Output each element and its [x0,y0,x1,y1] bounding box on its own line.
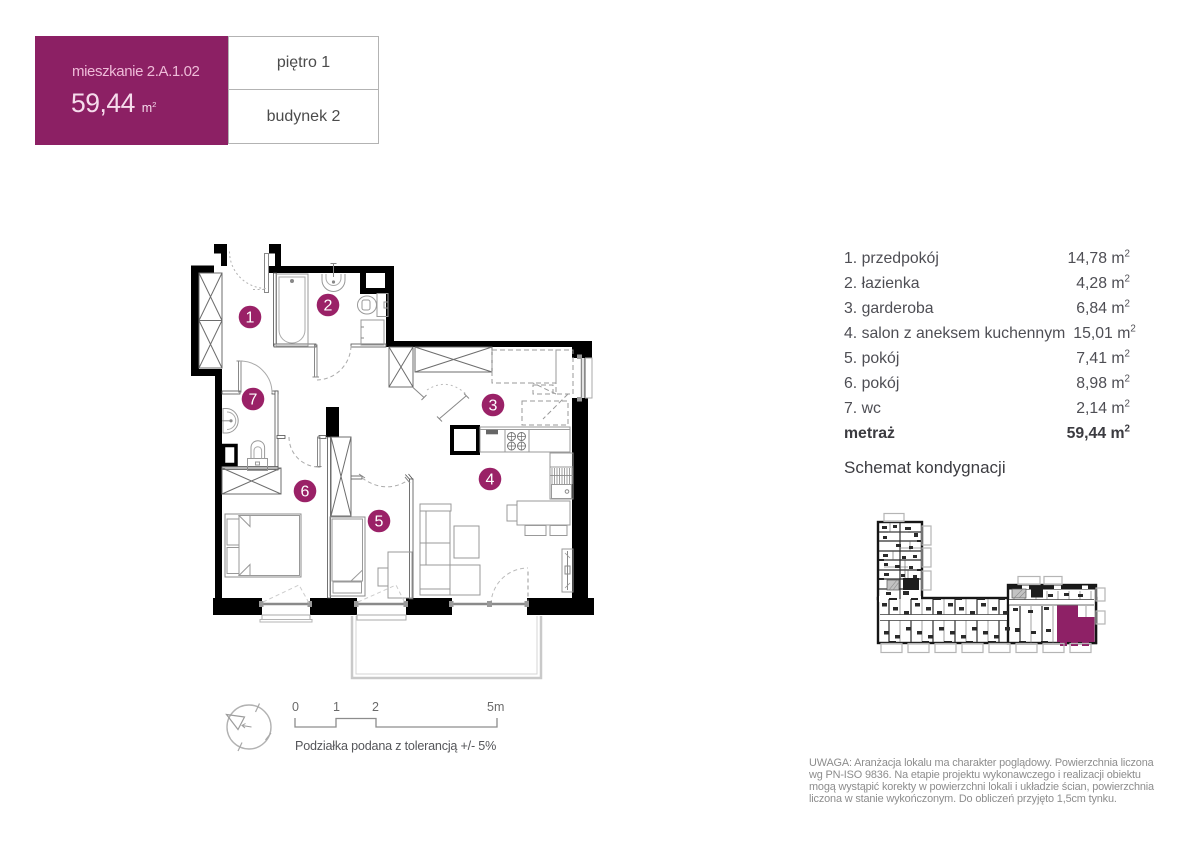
svg-text:5: 5 [375,514,384,531]
svg-text:5m: 5m [487,700,504,714]
svg-text:2: 2 [324,298,333,315]
svg-text:1: 1 [246,310,255,327]
svg-text:0: 0 [292,700,299,714]
svg-text:4: 4 [486,472,495,489]
svg-text:6: 6 [301,484,310,501]
svg-text:7: 7 [249,392,258,409]
svg-text:2: 2 [372,700,379,714]
svg-text:3: 3 [489,398,498,415]
svg-text:1: 1 [333,700,340,714]
